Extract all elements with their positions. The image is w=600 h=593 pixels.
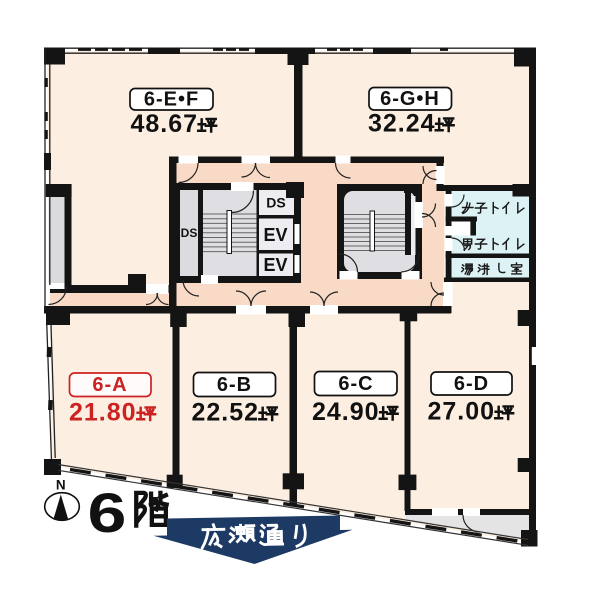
svg-text:6-A: 6-A [92, 374, 127, 396]
svg-text:6-C: 6-C [338, 373, 373, 395]
svg-text:48.67: 48.67 [131, 110, 199, 138]
svg-text:32.24: 32.24 [368, 110, 436, 138]
svg-text:DS: DS [181, 226, 198, 240]
svg-text:6-E•F: 6-E•F [144, 89, 199, 111]
svg-text:EV: EV [263, 255, 287, 275]
svg-text:N: N [56, 478, 66, 493]
svg-text:DS: DS [266, 195, 285, 211]
svg-text:24.90: 24.90 [312, 398, 380, 426]
svg-text:6-D: 6-D [454, 373, 489, 395]
svg-text:6-B: 6-B [217, 374, 252, 396]
svg-text:EV: EV [263, 225, 287, 245]
svg-text:6-G•H: 6-G•H [380, 88, 440, 110]
svg-text:6: 6 [88, 483, 127, 545]
svg-text:27.00: 27.00 [428, 398, 496, 426]
svg-text:21.80: 21.80 [69, 399, 137, 427]
svg-text:22.52: 22.52 [192, 399, 260, 427]
